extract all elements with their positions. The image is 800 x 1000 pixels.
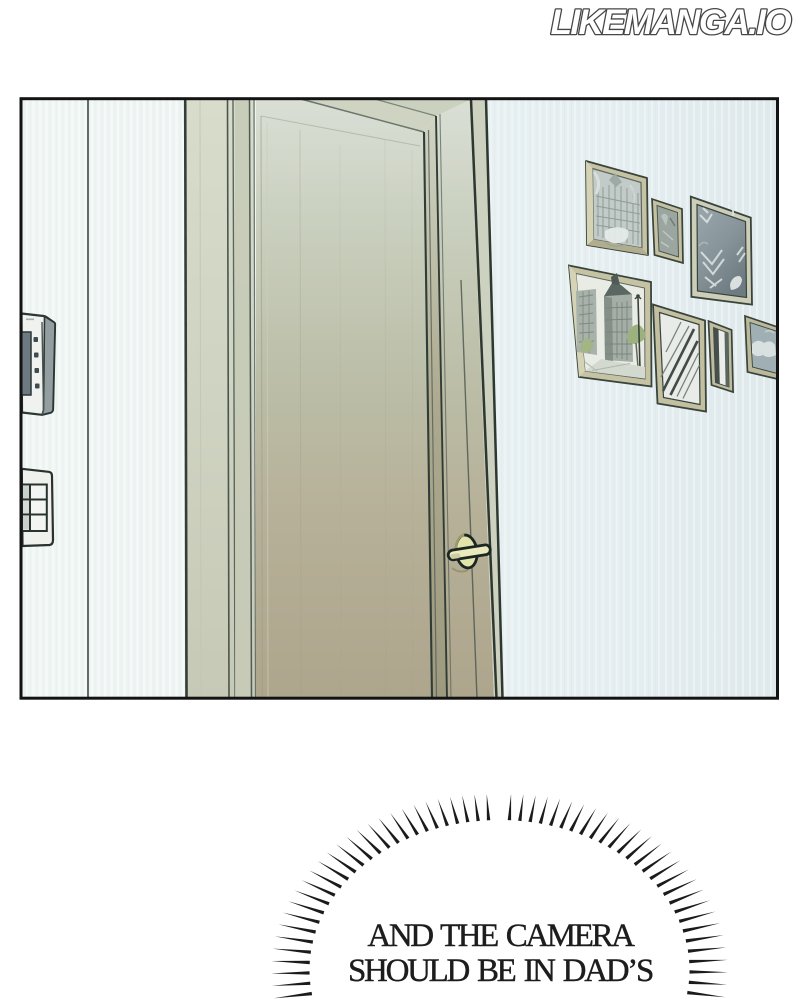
svg-text:LIKEMANGA.IO: LIKEMANGA.IO — [551, 3, 792, 42]
svg-text:SHOULD BE IN DAD’S: SHOULD BE IN DAD’S — [348, 953, 653, 989]
svg-text:AND THE CAMERA: AND THE CAMERA — [367, 918, 635, 954]
